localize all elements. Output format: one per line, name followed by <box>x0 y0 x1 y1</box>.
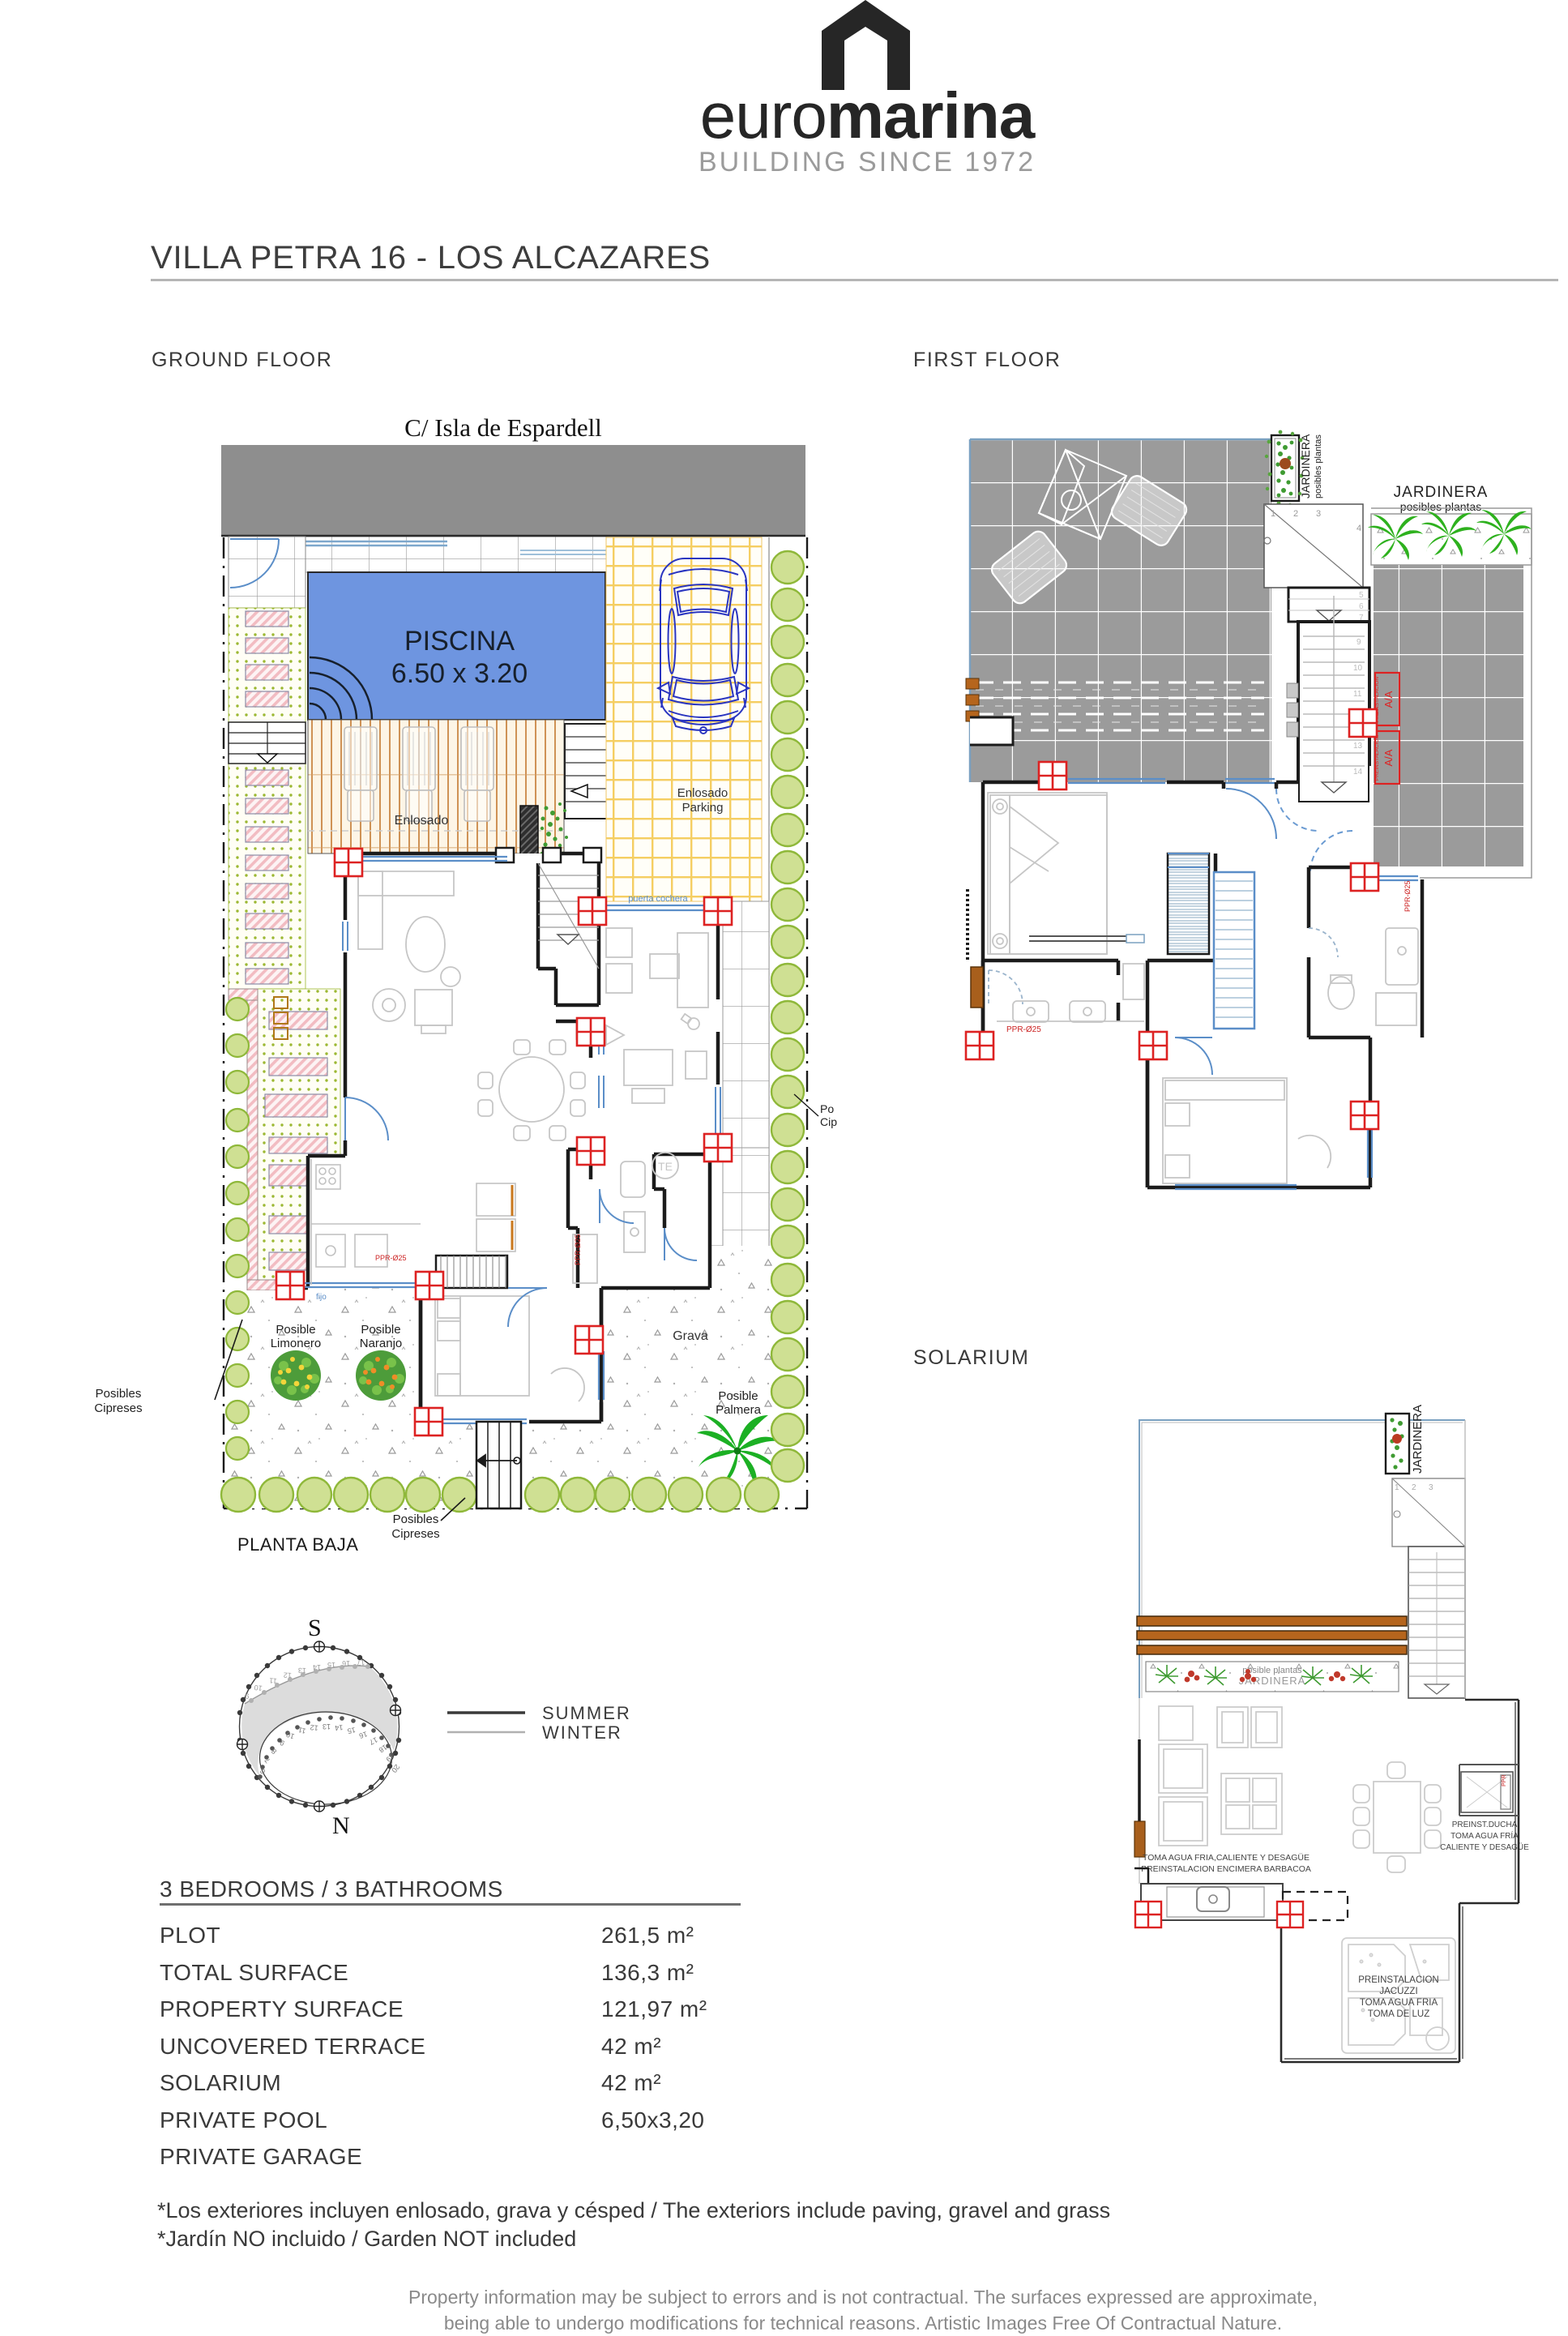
svg-text:11: 11 <box>1353 690 1362 699</box>
svg-text:Enlosado: Enlosado <box>677 786 728 800</box>
svg-text:Limonero: Limonero <box>271 1337 322 1350</box>
svg-text:puerta cochera: puerta cochera <box>628 894 688 904</box>
svg-text:Posible: Posible <box>361 1323 400 1337</box>
svg-text:1: 1 <box>1395 1483 1399 1492</box>
svg-text:6.50 x 3.20: 6.50 x 3.20 <box>391 658 528 689</box>
svg-text:15: 15 <box>327 1661 335 1669</box>
svg-text:16: 16 <box>342 1659 351 1668</box>
svg-text:PREINSTALACION: PREINSTALACION <box>1358 1975 1438 1985</box>
svg-text:17: 17 <box>357 1658 365 1667</box>
svg-text:A/A: A/A <box>1382 691 1395 708</box>
svg-text:11: 11 <box>269 1676 277 1685</box>
svg-text:12: 12 <box>310 1723 318 1732</box>
svg-text:posibles plantas: posibles plantas <box>1400 500 1481 513</box>
svg-text:14: 14 <box>1353 768 1363 777</box>
svg-text:PPR-Ø25: PPR-Ø25 <box>1404 880 1412 912</box>
svg-text:3: 3 <box>1429 1483 1433 1492</box>
svg-text:PREINSTALACION ENCIMERA BARBAC: PREINSTALACION ENCIMERA BARBACOA <box>1141 1864 1311 1874</box>
svg-text:PREINSTALACION: PREINSTALACION <box>1374 735 1380 781</box>
svg-text:PPR-Ø25: PPR-Ø25 <box>1006 1025 1041 1034</box>
svg-text:TOMA AGUA FRIA,CALIENTE Y DESA: TOMA AGUA FRIA,CALIENTE Y DESAGÜE <box>1143 1853 1310 1863</box>
svg-text:13: 13 <box>323 1722 331 1731</box>
svg-text:Naranjo: Naranjo <box>360 1337 403 1350</box>
svg-text:6: 6 <box>1359 602 1364 611</box>
svg-text:TOMA DE LUZ: TOMA DE LUZ <box>1368 2009 1429 2019</box>
svg-text:S: S <box>308 1615 322 1641</box>
svg-text:Posible: Posible <box>276 1323 315 1337</box>
svg-text:2: 2 <box>1293 509 1298 519</box>
svg-text:Cip: Cip <box>820 1115 837 1128</box>
svg-text:12: 12 <box>284 1671 293 1679</box>
svg-text:4: 4 <box>1357 524 1361 533</box>
svg-text:N: N <box>332 1812 350 1839</box>
svg-text:Grava: Grava <box>673 1329 708 1343</box>
svg-text:2: 2 <box>1412 1483 1416 1492</box>
svg-text:WINTER: WINTER <box>542 1722 622 1743</box>
svg-text:JARDINERA: JARDINERA <box>1299 434 1312 498</box>
svg-text:17: 17 <box>368 1735 378 1746</box>
svg-text:fijo: fijo <box>316 1293 327 1302</box>
svg-text:PPR-Ø25: PPR-Ø25 <box>574 1234 582 1265</box>
svg-text:PREINST.DUCHA: PREINST.DUCHA <box>1452 1820 1518 1829</box>
svg-text:JARDINERA: JARDINERA <box>1411 1405 1425 1474</box>
svg-text:C/ Isla de Espardell: C/ Isla de Espardell <box>404 413 602 442</box>
svg-text:16: 16 <box>358 1730 369 1740</box>
svg-text:TOMA AGUA FRÍA: TOMA AGUA FRÍA <box>1451 1830 1519 1841</box>
svg-text:9: 9 <box>1357 638 1361 647</box>
svg-text:A/A: A/A <box>1382 749 1395 766</box>
svg-text:CALIENTE Y DESAGÜE: CALIENTE Y DESAGÜE <box>1440 1842 1529 1852</box>
svg-text:9: 9 <box>245 1692 250 1701</box>
svg-text:1: 1 <box>1271 509 1275 519</box>
svg-text:Parking: Parking <box>682 801 724 815</box>
svg-text:5: 5 <box>1359 591 1364 600</box>
svg-text:posibles plantas: posibles plantas <box>1314 434 1323 498</box>
svg-text:PISCINA: PISCINA <box>404 626 515 657</box>
svg-text:SUMMER: SUMMER <box>542 1703 631 1723</box>
svg-text:3: 3 <box>1316 509 1321 519</box>
svg-text:15: 15 <box>347 1726 357 1735</box>
svg-text:PPR: PPR <box>1502 1775 1507 1786</box>
svg-text:10: 10 <box>1353 664 1363 673</box>
svg-text:TOMA AGUA FRIA: TOMA AGUA FRIA <box>1360 1998 1438 2008</box>
svg-text:13: 13 <box>298 1666 306 1675</box>
svg-text:Posible: Posible <box>718 1389 758 1403</box>
svg-text:10: 10 <box>254 1684 263 1692</box>
svg-text:JARDINERA: JARDINERA <box>1394 484 1489 501</box>
svg-text:JACUZZI: JACUZZI <box>1379 1987 1417 1996</box>
svg-text:14: 14 <box>335 1723 344 1732</box>
svg-text:Palmera: Palmera <box>716 1403 762 1417</box>
svg-text:14: 14 <box>313 1663 321 1671</box>
svg-text:TE: TE <box>658 1160 673 1173</box>
svg-text:Enlosado: Enlosado <box>395 814 449 828</box>
svg-text:Po: Po <box>820 1102 834 1115</box>
svg-text:PPR-Ø25: PPR-Ø25 <box>375 1254 407 1262</box>
svg-text:13: 13 <box>1353 742 1363 751</box>
